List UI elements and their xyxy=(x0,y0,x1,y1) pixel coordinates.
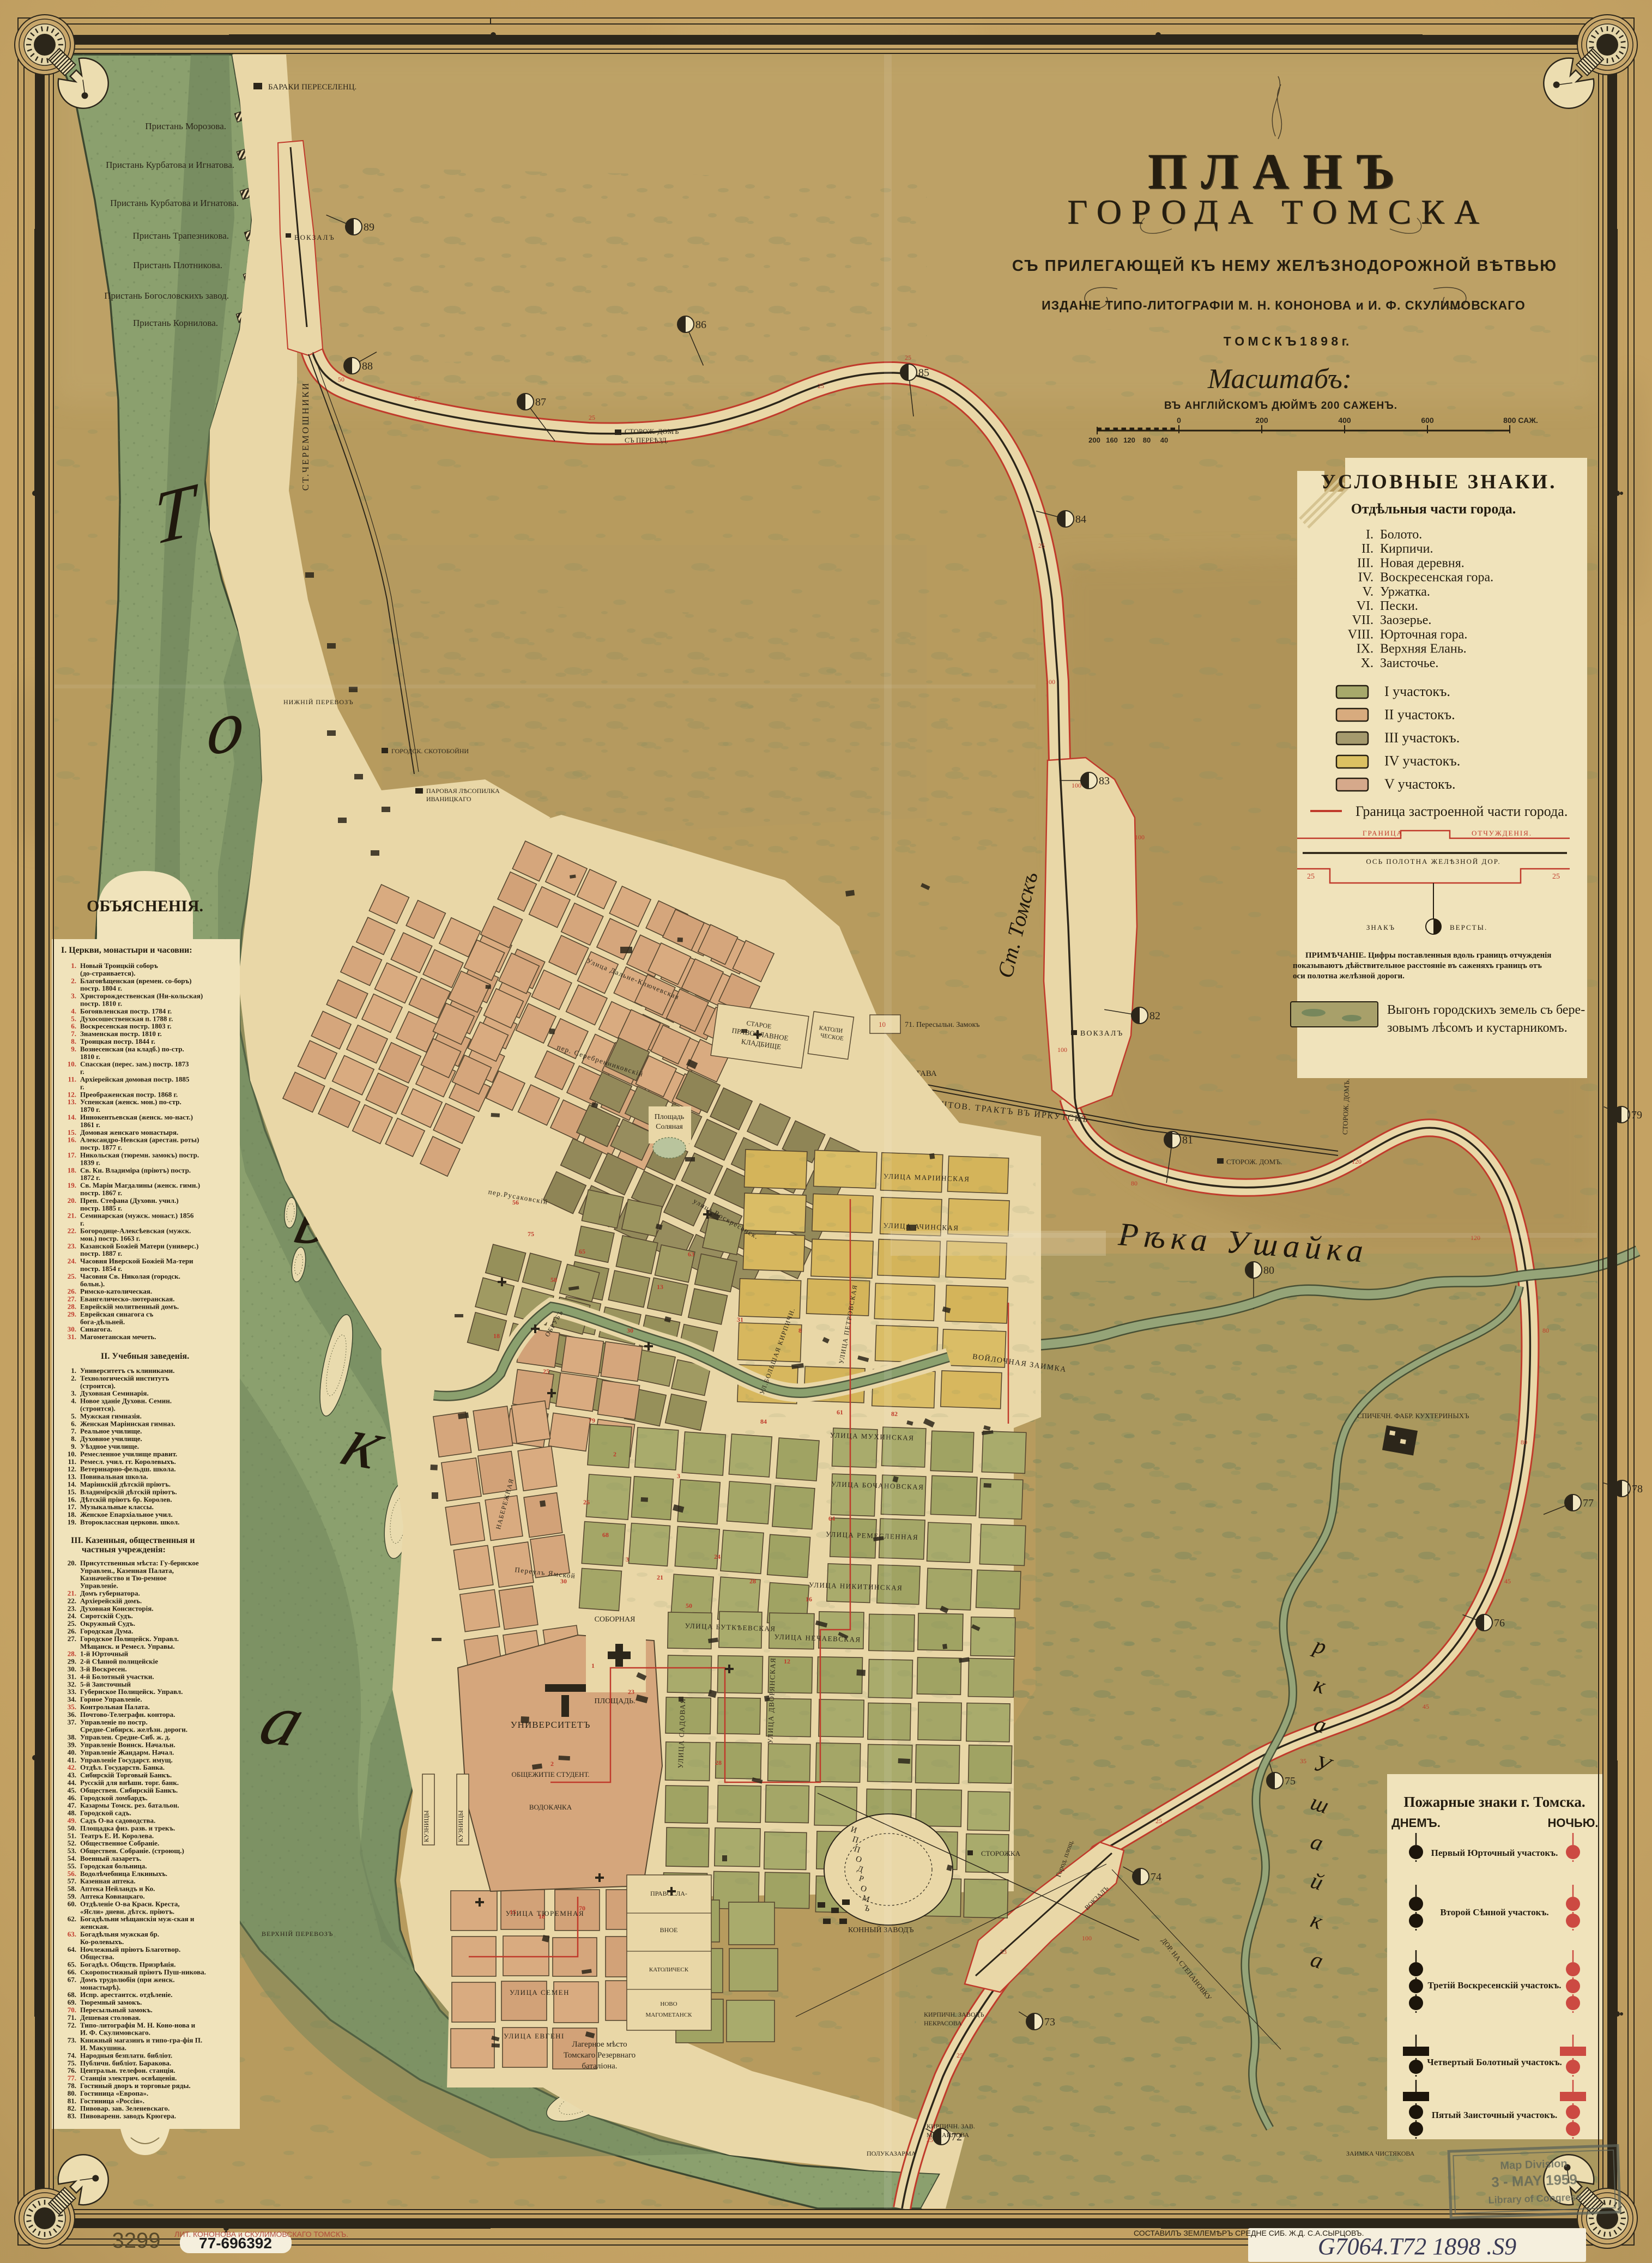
svg-text:85: 85 xyxy=(918,367,929,379)
svg-text:Сиротскій Судъ.: Сиротскій Судъ. xyxy=(80,1612,133,1620)
svg-text:25.: 25. xyxy=(68,1272,76,1280)
svg-text:31.: 31. xyxy=(68,1333,76,1341)
svg-text:I участокъ.: I участокъ. xyxy=(1384,683,1450,699)
svg-text:17.: 17. xyxy=(68,1151,76,1159)
svg-text:Пивоваренн. заводъ Крюгера.: Пивоваренн. заводъ Крюгера. xyxy=(80,2112,176,2120)
svg-text:Духовная Семинарія.: Духовная Семинарія. xyxy=(80,1389,149,1397)
svg-text:89: 89 xyxy=(364,221,374,233)
svg-text:100: 100 xyxy=(1072,782,1081,789)
svg-text:84: 84 xyxy=(760,1418,767,1425)
svg-text:84: 84 xyxy=(1075,513,1086,525)
svg-text:г.: г. xyxy=(80,1219,84,1227)
svg-text:42.: 42. xyxy=(68,1763,76,1771)
svg-text:80: 80 xyxy=(1143,436,1151,444)
svg-text:Обществен. Собраніе. (строющ.): Обществен. Собраніе. (строющ.) xyxy=(80,1847,184,1855)
svg-text:21.: 21. xyxy=(68,1589,76,1598)
svg-text:75.: 75. xyxy=(68,2059,76,2067)
svg-text:Вознесенская (на кладб.) по-ст: Вознесенская (на кладб.) по-стр. xyxy=(80,1045,184,1053)
svg-text:И. Макушина.: И. Макушина. xyxy=(80,2044,126,2052)
svg-text:БАРАКИ ПЕРЕСЕЛЕНЦ.: БАРАКИ ПЕРЕСЕЛЕНЦ. xyxy=(268,83,356,92)
svg-text:КИРПИЧН. ЗАВ.: КИРПИЧН. ЗАВ. xyxy=(927,2122,975,2130)
svg-text:25: 25 xyxy=(589,414,595,421)
svg-text:Мужская гимназія.: Мужская гимназія. xyxy=(80,1412,142,1420)
svg-text:СТОРОЖ. ДОМЪ.: СТОРОЖ. ДОМЪ. xyxy=(1226,1158,1282,1166)
svg-text:160: 160 xyxy=(1106,436,1118,444)
svg-text:64.: 64. xyxy=(68,1945,76,1953)
svg-text:50: 50 xyxy=(686,1602,692,1609)
svg-text:Томскаго Резервнаго: Томскаго Резервнаго xyxy=(564,2051,636,2060)
svg-text:Водолѣчебница Елкиныхъ.: Водолѣчебница Елкиныхъ. xyxy=(80,1869,167,1878)
svg-text:постр. 1885 г.: постр. 1885 г. xyxy=(80,1204,122,1212)
svg-text:НОЧЬЮ.: НОЧЬЮ. xyxy=(1547,1816,1598,1830)
svg-text:81.: 81. xyxy=(68,2097,76,2105)
svg-text:Почтово-Телеграфн. контора.: Почтово-Телеграфн. контора. xyxy=(80,1710,175,1719)
svg-text:25: 25 xyxy=(957,2052,963,2059)
svg-text:5-й Заисточный: 5-й Заисточный xyxy=(80,1680,131,1688)
svg-text:71. Пересыльн. Замокъ: 71. Пересыльн. Замокъ xyxy=(905,1021,980,1029)
svg-text:58: 58 xyxy=(550,1276,557,1284)
svg-text:12.: 12. xyxy=(68,1090,76,1098)
svg-text:48.: 48. xyxy=(68,1809,76,1817)
svg-text:Технологическій институтъ: Технологическій институтъ xyxy=(80,1374,170,1382)
svg-text:4.: 4. xyxy=(71,1007,76,1015)
svg-text:Отдѣленіе О-ва Красн. Креста,: Отдѣленіе О-ва Красн. Креста, xyxy=(80,1899,180,1908)
svg-text:Ветеринарно-фельдш. школа.: Ветеринарно-фельдш. школа. xyxy=(80,1465,176,1473)
svg-text:22.: 22. xyxy=(68,1227,76,1235)
svg-text:62.: 62. xyxy=(68,1915,76,1923)
svg-text:Аптека Ковнацкаго.: Аптека Ковнацкаго. xyxy=(80,1892,145,1901)
svg-text:Садъ О-ва садоводства.: Садъ О-ва садоводства. xyxy=(80,1817,155,1825)
svg-text:Соляная: Соляная xyxy=(656,1123,683,1131)
svg-text:НИЖНІЙ ПЕРЕВОЗЪ: НИЖНІЙ ПЕРЕВОЗЪ xyxy=(283,698,354,706)
svg-text:16.: 16. xyxy=(68,1495,76,1503)
svg-text:71.: 71. xyxy=(68,2013,76,2022)
svg-text:Дешевая столовая.: Дешевая столовая. xyxy=(80,2013,141,2022)
svg-text:30.: 30. xyxy=(68,1325,76,1333)
svg-text:Домъ трудолюбія (при женск.: Домъ трудолюбія (при женск. xyxy=(80,1975,175,1983)
svg-text:20.: 20. xyxy=(68,1196,76,1205)
svg-text:120: 120 xyxy=(1123,436,1135,444)
svg-text:IX.: IX. xyxy=(1357,642,1373,656)
svg-text:79: 79 xyxy=(589,1417,595,1424)
svg-text:СОБОРНАЯ: СОБОРНАЯ xyxy=(595,1615,636,1624)
svg-text:V участокъ.: V участокъ. xyxy=(1384,776,1456,792)
svg-text:9.: 9. xyxy=(71,1442,76,1450)
svg-text:4-й Болотный участки.: 4-й Болотный участки. xyxy=(80,1672,154,1680)
svg-text:ПАРОВАЯ ЛѢСОПИЛКА: ПАРОВАЯ ЛѢСОПИЛКА xyxy=(426,787,500,795)
svg-text:Пивовар. зав. Зеленевскаго.: Пивовар. зав. Зеленевскаго. xyxy=(80,2104,170,2113)
svg-text:Пристань Морозова.: Пристань Морозова. xyxy=(145,121,226,131)
svg-text:33.: 33. xyxy=(68,1687,76,1696)
svg-text:Пески.: Пески. xyxy=(1380,599,1418,613)
svg-text:Четвертый Болотный участокъ.: Четвертый Болотный участокъ. xyxy=(1427,2057,1562,2067)
svg-text:40.: 40. xyxy=(68,1748,76,1756)
svg-text:Городской ломбардъ.: Городской ломбардъ. xyxy=(80,1794,148,1802)
svg-text:76.: 76. xyxy=(68,2066,76,2074)
svg-text:Пристань Курбатова и Игнатова.: Пристань Курбатова и Игнатова. xyxy=(106,160,234,170)
svg-text:17.: 17. xyxy=(68,1503,76,1511)
svg-text:21: 21 xyxy=(657,1574,663,1581)
svg-text:Испр. арестантск. отдѣленіе.: Испр. арестантск. отдѣленіе. xyxy=(80,1990,172,1999)
svg-text:ПЛОЩАДЬ.: ПЛОЩАДЬ. xyxy=(594,1697,635,1705)
svg-text:80: 80 xyxy=(1263,1264,1274,1276)
svg-text:III. Казенныя, общественныя и: III. Казенныя, общественныя и xyxy=(71,1536,195,1545)
svg-text:Новая деревня.: Новая деревня. xyxy=(1380,556,1465,570)
svg-text:Повивальная школа.: Повивальная школа. xyxy=(80,1473,148,1481)
svg-text:80: 80 xyxy=(1521,1438,1527,1446)
svg-text:X.: X. xyxy=(1361,656,1373,670)
svg-text:25: 25 xyxy=(1038,542,1045,549)
svg-text:III.: III. xyxy=(1357,556,1373,570)
svg-text:Женское Епархіальное учил.: Женское Епархіальное учил. xyxy=(80,1510,173,1518)
svg-text:41.: 41. xyxy=(68,1756,76,1764)
svg-text:18: 18 xyxy=(493,1332,500,1340)
svg-text:67.: 67. xyxy=(68,1975,76,1983)
svg-text:69.: 69. xyxy=(68,1998,76,2006)
svg-text:СЪ ПРИЛЕГАЮЩЕЙ КЪ НЕМУ ЖЕЛѢЗНО: СЪ ПРИЛЕГАЮЩЕЙ КЪ НЕМУ ЖЕЛѢЗНОДОРОЖНОЙ В… xyxy=(1012,256,1557,275)
svg-text:57.: 57. xyxy=(68,1877,76,1885)
svg-text:постр. 1877 г.: постр. 1877 г. xyxy=(80,1143,122,1152)
svg-text:Римско-католическая.: Римско-католическая. xyxy=(80,1287,152,1296)
svg-text:65: 65 xyxy=(579,1248,585,1255)
svg-text:Второй Сѣнной участокъ.: Второй Сѣнной участокъ. xyxy=(1440,1907,1548,1917)
svg-text:женская.: женская. xyxy=(80,1922,108,1931)
svg-text:И. Ф. Скулимовскаго.: И. Ф. Скулимовскаго. xyxy=(80,2029,150,2037)
svg-text:Иннокентьевская (женск. мо-нас: Иннокентьевская (женск. мо-наст.) xyxy=(80,1113,193,1121)
svg-text:25: 25 xyxy=(1155,1817,1162,1825)
svg-text:Пожарные знаки г. Томска.: Пожарные знаки г. Томска. xyxy=(1403,1794,1585,1810)
svg-text:VI.: VI. xyxy=(1357,599,1373,613)
svg-text:80: 80 xyxy=(1131,1179,1137,1187)
svg-text:НЕКРАСОВА: НЕКРАСОВА xyxy=(924,2019,962,2027)
svg-text:29.: 29. xyxy=(68,1310,76,1318)
svg-text:о: о xyxy=(205,682,247,772)
svg-text:3: 3 xyxy=(626,1556,629,1563)
svg-text:Площадка физ. разв. и трекъ.: Площадка физ. разв. и трекъ. xyxy=(80,1824,175,1832)
svg-text:Маріинскій дѣтскій пріютъ.: Маріинскій дѣтскій пріютъ. xyxy=(80,1480,171,1489)
svg-text:Воскресенская гора.: Воскресенская гора. xyxy=(1380,571,1493,585)
svg-text:45: 45 xyxy=(1423,1703,1429,1710)
svg-text:Народныя безплатн. библіот.: Народныя безплатн. библіот. xyxy=(80,2051,172,2059)
svg-text:22.: 22. xyxy=(68,1596,76,1605)
svg-text:5.: 5. xyxy=(71,1014,76,1022)
svg-text:1: 1 xyxy=(591,1662,595,1669)
svg-text:77: 77 xyxy=(1583,1497,1594,1509)
svg-text:19.: 19. xyxy=(68,1518,76,1526)
svg-text:Семинарская (мужск. монаст.) 1: Семинарская (мужск. монаст.) 1856 xyxy=(80,1212,194,1220)
svg-text:Пересыльный замокъ.: Пересыльный замокъ. xyxy=(80,2006,153,2014)
svg-text:мон.) постр. 1663 г.: мон.) постр. 1663 г. xyxy=(80,1234,140,1242)
svg-text:Городская больница.: Городская больница. xyxy=(80,1862,147,1870)
svg-text:Св. Маріи Магдалины (женск. ги: Св. Маріи Магдалины (женск. гимн.) xyxy=(80,1181,200,1189)
svg-text:Пристань Трапезникова.: Пристань Трапезникова. xyxy=(132,231,229,241)
svg-text:Новый Троицкій соборъ: Новый Троицкій соборъ xyxy=(80,961,158,970)
svg-text:24: 24 xyxy=(714,1553,721,1560)
svg-text:г.: г. xyxy=(80,1068,84,1076)
svg-text:5.: 5. xyxy=(71,1412,76,1420)
svg-text:47.: 47. xyxy=(68,1801,76,1810)
svg-text:ВЪ АНГЛІЙСКОМЪ ДЮЙМѢ 200 С: ВЪ АНГЛІЙСКОМЪ ДЮЙМѢ 200 САЖЕНЪ. xyxy=(1164,400,1397,412)
svg-text:23.: 23. xyxy=(68,1242,76,1250)
svg-text:Ночлежный пріютъ Благотвор.: Ночлежный пріютъ Благотвор. xyxy=(80,1945,180,1953)
svg-text:НОВО: НОВО xyxy=(660,2001,677,2007)
svg-text:8: 8 xyxy=(798,1327,802,1334)
svg-text:Александро-Невская (арестан. р: Александро-Невская (арестан. роты) xyxy=(80,1136,199,1144)
svg-text:Казенная аптека.: Казенная аптека. xyxy=(80,1877,136,1885)
svg-text:60.: 60. xyxy=(68,1899,76,1908)
svg-text:постр. 1887 г.: постр. 1887 г. xyxy=(80,1249,122,1257)
svg-text:ОБЪЯСНЕНІЯ.: ОБЪЯСНЕНІЯ. xyxy=(87,897,203,915)
svg-text:СЪ ПЕРЕѢЗД.: СЪ ПЕРЕѢЗД. xyxy=(625,436,668,444)
svg-text:39.: 39. xyxy=(68,1741,76,1749)
svg-text:Ремесл. учил. гг. Королевыхъ.: Ремесл. учил. гг. Королевыхъ. xyxy=(80,1457,176,1466)
svg-text:70.: 70. xyxy=(68,2006,76,2014)
svg-text:79: 79 xyxy=(1631,1109,1642,1121)
svg-text:50.: 50. xyxy=(68,1824,76,1832)
svg-text:ЗНАКЪ: ЗНАКЪ xyxy=(1366,923,1395,931)
svg-text:СТОРОЖКА: СТОРОЖКА xyxy=(981,1849,1021,1857)
svg-text:28: 28 xyxy=(715,1759,722,1766)
svg-text:100: 100 xyxy=(1082,1934,1092,1942)
svg-text:ИВАНИЦКАГО: ИВАНИЦКАГО xyxy=(426,795,471,803)
svg-text:Св. Кн. Владиміра (пріютъ) пос: Св. Кн. Владиміра (пріютъ) постр. xyxy=(80,1166,191,1174)
svg-text:Книжный магазинъ и типо-гра-фі: Книжный магазинъ и типо-гра-фія П. xyxy=(80,2036,202,2044)
svg-text:83.: 83. xyxy=(68,2112,76,2120)
svg-text:35.: 35. xyxy=(68,1703,76,1711)
svg-text:82: 82 xyxy=(891,1410,898,1418)
svg-text:25: 25 xyxy=(1307,873,1315,881)
svg-text:Т: Т xyxy=(154,466,198,561)
svg-text:Общественное Собраніе.: Общественное Собраніе. xyxy=(80,1839,159,1847)
svg-text:Гостиница «Европа».: Гостиница «Европа». xyxy=(80,2089,148,2097)
svg-text:Новое зданіе Духовн. Семин.: Новое зданіе Духовн. Семин. xyxy=(80,1397,172,1405)
svg-text:25: 25 xyxy=(818,382,824,390)
svg-text:100: 100 xyxy=(1045,678,1055,686)
svg-text:Губернское Полицейск. Управл.: Губернское Полицейск. Управл. xyxy=(80,1687,183,1696)
svg-text:1810 г.: 1810 г. xyxy=(80,1052,100,1061)
svg-text:Юрточная гора.: Юрточная гора. xyxy=(1380,627,1467,642)
svg-text:ВЕРСТЫ.: ВЕРСТЫ. xyxy=(1450,923,1487,931)
svg-text:Евангелическо-лютеранская.: Евангелическо-лютеранская. xyxy=(80,1295,174,1303)
svg-text:3.: 3. xyxy=(71,1389,76,1397)
svg-text:Казармы Томск. рез. батальон.: Казармы Томск. рез. батальон. xyxy=(80,1801,179,1810)
svg-text:Богадѣл. Общств. Призрѣнія.: Богадѣл. Общств. Призрѣнія. xyxy=(80,1961,176,1969)
svg-text:Мѣщанск. и Ремесл. Управы.: Мѣщанск. и Ремесл. Управы. xyxy=(80,1642,175,1650)
svg-text:16.: 16. xyxy=(68,1136,76,1144)
svg-text:Владимірскій дѣтскій пріютъ.: Владимірскій дѣтскій пріютъ. xyxy=(80,1487,177,1496)
svg-text:76: 76 xyxy=(1494,1617,1505,1629)
svg-text:III участокъ.: III участокъ. xyxy=(1384,730,1460,746)
svg-text:Сибирскій Торговый Банкъ.: Сибирскій Торговый Банкъ. xyxy=(80,1771,172,1779)
svg-text:зовымъ лѣсомъ и кустарникомъ.: зовымъ лѣсомъ и кустарникомъ. xyxy=(1387,1021,1568,1035)
svg-text:4.: 4. xyxy=(71,1397,76,1405)
svg-text:9.: 9. xyxy=(71,1045,76,1053)
svg-text:IV участокъ.: IV участокъ. xyxy=(1384,753,1460,769)
svg-text:74: 74 xyxy=(1151,1871,1161,1883)
svg-text:баталіона.: баталіона. xyxy=(582,2062,617,2071)
svg-text:100: 100 xyxy=(1057,1046,1067,1054)
svg-text:3.: 3. xyxy=(71,992,76,1000)
svg-text:800 САЖ.: 800 САЖ. xyxy=(1503,416,1538,425)
svg-text:Благовѣщенская (времен. со-бор: Благовѣщенская (времен. со-боръ) xyxy=(80,977,191,985)
svg-text:показываютъ дѣйствительное рас: показываютъ дѣйствительное расстояніе въ… xyxy=(1293,961,1542,970)
svg-text:30: 30 xyxy=(627,1327,633,1334)
svg-text:Аптека Нейландъ и Ко.: Аптека Нейландъ и Ко. xyxy=(80,1885,155,1893)
svg-text:72.: 72. xyxy=(68,2021,76,2029)
svg-text:ОТЧУЖДЕНІЯ.: ОТЧУЖДЕНІЯ. xyxy=(1472,829,1532,837)
svg-text:Уѣздное училище.: Уѣздное училище. xyxy=(80,1442,139,1450)
svg-text:28.: 28. xyxy=(68,1303,76,1311)
svg-text:Троицкая постр. 1844 г.: Троицкая постр. 1844 г. xyxy=(80,1037,155,1045)
svg-text:26.: 26. xyxy=(68,1287,76,1296)
svg-text:Спасская (перес. зам.) постр.: Спасская (перес. зам.) постр. 1873 xyxy=(80,1060,189,1068)
svg-text:80.: 80. xyxy=(68,2089,76,2097)
svg-text:86: 86 xyxy=(695,319,706,331)
svg-text:КИРПИЧН. ЗАВОДЪ: КИРПИЧН. ЗАВОДЪ xyxy=(924,2011,984,2018)
svg-text:83: 83 xyxy=(1099,775,1110,787)
svg-text:II участокъ.: II участокъ. xyxy=(1384,707,1455,723)
svg-text:Богоявленская постр. 1784 г.: Богоявленская постр. 1784 г. xyxy=(80,1007,172,1015)
svg-text:49.: 49. xyxy=(68,1817,76,1825)
svg-text:58.: 58. xyxy=(68,1885,76,1893)
svg-text:«Ясли» дневн. дѣтск. пріютъ.: «Ясли» дневн. дѣтск. пріютъ. xyxy=(80,1907,174,1915)
svg-text:12: 12 xyxy=(784,1657,790,1665)
svg-text:I. Церкви, монастыри и часовни: I. Церкви, монастыри и часовни: xyxy=(61,946,192,955)
svg-text:Выгонъ городскихъ земель съ бе: Выгонъ городскихъ земель съ бере- xyxy=(1387,1003,1585,1017)
svg-text:56.: 56. xyxy=(68,1869,76,1878)
svg-text:Третій Воскресенскій участокъ.: Третій Воскресенскій участокъ. xyxy=(1427,1980,1561,1990)
svg-text:Управленіе по постр.: Управленіе по постр. xyxy=(80,1718,148,1726)
svg-text:КАТОЛИЧЕСК: КАТОЛИЧЕСК xyxy=(649,1966,689,1973)
svg-text:13.: 13. xyxy=(68,1098,76,1106)
svg-text:35: 35 xyxy=(1300,1757,1306,1765)
svg-text:Музыкальные классы.: Музыкальные классы. xyxy=(80,1503,154,1511)
svg-text:15.: 15. xyxy=(68,1128,76,1136)
svg-text:14.: 14. xyxy=(68,1113,76,1121)
svg-text:(строится).: (строится). xyxy=(80,1405,116,1413)
svg-text:СТОРОЖ. ДОМЪ: СТОРОЖ. ДОМЪ xyxy=(625,427,679,435)
svg-text:УЛИЦА ЕВГЕНІ: УЛИЦА ЕВГЕНІ xyxy=(504,2032,565,2040)
svg-text:2: 2 xyxy=(550,1760,554,1768)
svg-text:1.: 1. xyxy=(71,1366,76,1375)
svg-text:Архіерейская домовая постр. 18: Архіерейская домовая постр. 1885 xyxy=(80,1075,190,1084)
svg-text:Т О М С К Ъ 1 8 9 8 г.: Т О М С К Ъ 1 8 9 8 г. xyxy=(1224,334,1349,348)
svg-text:Центральн. телефон. станція.: Центральн. телефон. станція. xyxy=(80,2066,175,2074)
svg-text:63: 63 xyxy=(688,1250,694,1258)
svg-text:1-й Юрточный: 1-й Юрточный xyxy=(80,1650,129,1658)
svg-text:бога-дѣльней.: бога-дѣльней. xyxy=(80,1317,125,1326)
svg-text:55.: 55. xyxy=(68,1862,76,1870)
svg-text:Духовная Консисторія.: Духовная Консисторія. xyxy=(80,1604,154,1612)
svg-text:Горное Управленіе.: Горное Управленіе. xyxy=(80,1695,142,1703)
svg-text:27.: 27. xyxy=(68,1635,76,1643)
svg-text:28.: 28. xyxy=(68,1650,76,1658)
svg-text:78.: 78. xyxy=(68,2082,76,2090)
svg-text:38.: 38. xyxy=(68,1733,76,1741)
svg-text:Часовня Иверской Божіей Ма-тер: Часовня Иверской Божіей Ма-тери xyxy=(80,1257,193,1265)
svg-text:Обществен. Сибирскій Банкъ.: Обществен. Сибирскій Банкъ. xyxy=(80,1786,178,1794)
svg-text:6.: 6. xyxy=(71,1022,76,1030)
svg-text:Русскій для внѣшн. торг. банк.: Русскій для внѣшн. торг. банк. xyxy=(80,1778,179,1787)
svg-text:Пристань Богословскихъ завод.: Пристань Богословскихъ завод. xyxy=(104,291,229,301)
svg-text:Скоропостижный пріютъ Пуш-нико: Скоропостижный пріютъ Пуш-никова. xyxy=(80,1968,206,1976)
svg-text:Городская Дума.: Городская Дума. xyxy=(80,1627,133,1635)
svg-text:ЗАИМКА ЧИСТЯКОВА: ЗАИМКА ЧИСТЯКОВА xyxy=(1346,2150,1415,2157)
svg-text:31: 31 xyxy=(737,1316,743,1323)
svg-text:23: 23 xyxy=(628,1688,634,1696)
svg-text:1839 г.: 1839 г. xyxy=(80,1158,100,1166)
svg-text:Публичн. библіот. Баракова.: Публичн. библіот. Баракова. xyxy=(80,2059,171,2067)
svg-text:10.: 10. xyxy=(68,1450,76,1458)
svg-text:Преображенская постр. 1868 г.: Преображенская постр. 1868 г. xyxy=(80,1090,178,1098)
svg-text:25: 25 xyxy=(543,1368,549,1375)
svg-text:Знаменская постр. 1810 г.: Знаменская постр. 1810 г. xyxy=(80,1030,162,1038)
svg-text:Дѣтскій пріютъ бр. Королев.: Дѣтскій пріютъ бр. Королев. xyxy=(80,1495,172,1503)
svg-text:27.: 27. xyxy=(68,1295,76,1303)
svg-text:600: 600 xyxy=(1421,416,1434,425)
svg-text:8.: 8. xyxy=(71,1435,76,1443)
svg-text:Университетъ съ клиниками.: Университетъ съ клиниками. xyxy=(80,1366,174,1375)
svg-text:100: 100 xyxy=(1135,833,1145,841)
svg-text:25.: 25. xyxy=(68,1619,76,1627)
svg-text:Заисточье.: Заисточье. xyxy=(1380,656,1438,670)
svg-text:постр. 1804 г.: постр. 1804 г. xyxy=(80,984,122,993)
svg-text:постр. 1867 г.: постр. 1867 г. xyxy=(80,1189,122,1197)
svg-text:46.: 46. xyxy=(68,1794,76,1802)
svg-text:Городское Полицейск. Управл.: Городское Полицейск. Управл. xyxy=(80,1635,179,1643)
svg-text:52.: 52. xyxy=(68,1839,76,1847)
svg-text:Еврейская синагога съ: Еврейская синагога съ xyxy=(80,1310,154,1318)
svg-text:Управленіе.: Управленіе. xyxy=(80,1582,118,1590)
svg-text:25: 25 xyxy=(1552,873,1560,881)
svg-text:СТ.ЧЕРЕМОШНИКИ: СТ.ЧЕРЕМОШНИКИ xyxy=(300,382,311,491)
svg-text:31.: 31. xyxy=(68,1672,76,1680)
svg-text:Гостиный дворъ и торговые ряды: Гостиный дворъ и торговые ряды. xyxy=(80,2082,191,2090)
svg-text:28: 28 xyxy=(749,1577,756,1585)
svg-text:Болото.: Болото. xyxy=(1380,528,1422,542)
svg-text:ГОРОДСК. СКОТОБОЙНИ: ГОРОДСК. СКОТОБОЙНИ xyxy=(391,747,469,755)
svg-text:120: 120 xyxy=(1352,1158,1361,1165)
svg-text:3 - MAY 1959: 3 - MAY 1959 xyxy=(1491,2171,1578,2190)
svg-text:Заозерье.: Заозерье. xyxy=(1380,613,1431,627)
svg-text:ВОКЗАЛЪ: ВОКЗАЛЪ xyxy=(294,233,335,241)
svg-text:Окружный Судъ.: Окружный Судъ. xyxy=(80,1619,135,1627)
svg-text:Воскресенская постр. 1803 г.: Воскресенская постр. 1803 г. xyxy=(80,1022,172,1030)
svg-text:СОСТАВИЛЪ ЗЕМЛЕМѢРЪ СРЕДНЕ СИБ: СОСТАВИЛЪ ЗЕМЛЕМѢРЪ СРЕДНЕ СИБ. Ж.Д. С.А… xyxy=(1134,2229,1364,2237)
svg-text:26.: 26. xyxy=(68,1627,76,1635)
svg-text:Домовая женскаго монастыря.: Домовая женскаго монастыря. xyxy=(80,1128,178,1136)
svg-text:МАГОМЕТАНСК: МАГОМЕТАНСК xyxy=(646,2012,693,2018)
svg-text:61: 61 xyxy=(837,1408,843,1416)
svg-text:ВНОЕ: ВНОЕ xyxy=(660,1926,678,1934)
svg-text:КУЗНИЦЫ: КУЗНИЦЫ xyxy=(422,1810,430,1842)
svg-text:40: 40 xyxy=(1160,436,1168,444)
svg-text:ПЛАНЪ: ПЛАНЪ xyxy=(1149,144,1410,200)
svg-text:73: 73 xyxy=(1044,2016,1055,2028)
svg-text:400: 400 xyxy=(1338,416,1351,425)
svg-text:3: 3 xyxy=(677,1472,680,1480)
svg-text:Духосошественская п. 1788 г.: Духосошественская п. 1788 г. xyxy=(80,1014,173,1022)
svg-text:7.: 7. xyxy=(71,1030,76,1038)
svg-text:200: 200 xyxy=(1088,436,1100,444)
svg-text:21.: 21. xyxy=(68,1212,76,1220)
svg-text:75: 75 xyxy=(528,1230,534,1238)
svg-text:Площадь: Площадь xyxy=(655,1113,685,1121)
svg-text:Общества.: Общества. xyxy=(80,1953,114,1961)
svg-text:частныя учрежденія:: частныя учрежденія: xyxy=(82,1545,166,1554)
svg-text:Театръ Е. И. Королева.: Театръ Е. И. Королева. xyxy=(80,1831,154,1840)
svg-text:77.: 77. xyxy=(68,2074,76,2082)
